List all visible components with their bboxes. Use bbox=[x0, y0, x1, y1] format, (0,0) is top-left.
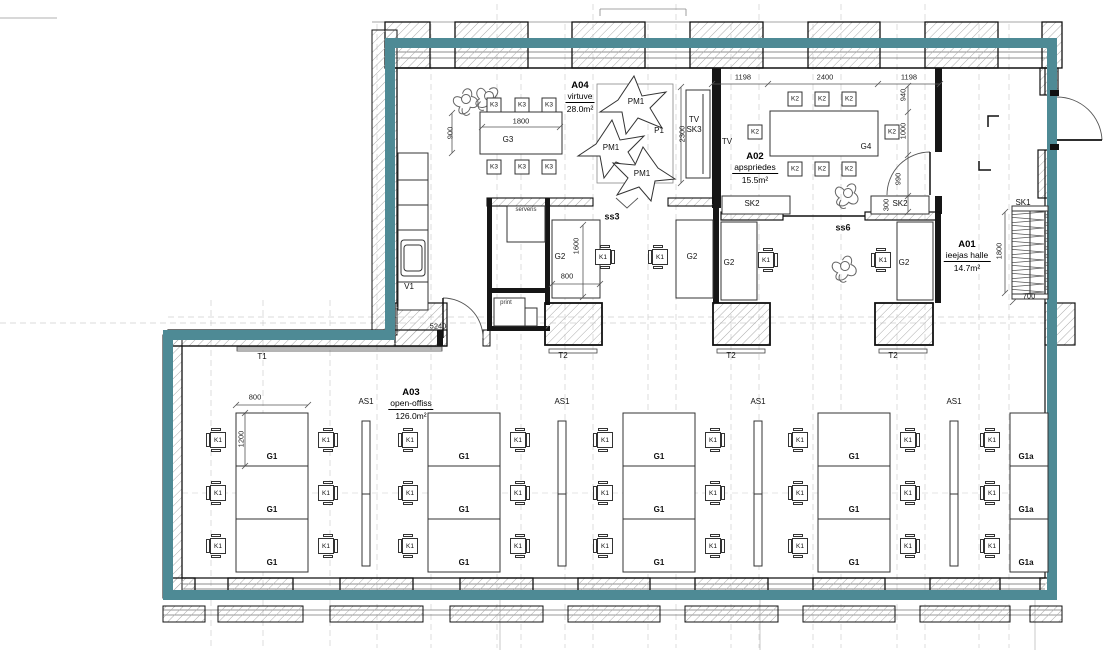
label-g1: G1 bbox=[654, 506, 665, 514]
chair-label: K1 bbox=[793, 433, 807, 447]
chair-label: K1 bbox=[706, 433, 720, 447]
chair-k1: K1 bbox=[758, 252, 774, 268]
chair-part bbox=[526, 486, 530, 500]
label-as1: AS1 bbox=[358, 398, 373, 406]
chair-part bbox=[600, 245, 610, 248]
chair-label: K1 bbox=[876, 253, 890, 267]
chair-part bbox=[206, 539, 210, 553]
room-code: A03 bbox=[388, 387, 433, 398]
chair-part bbox=[763, 269, 773, 272]
chair-part bbox=[323, 534, 333, 537]
dimension-800: 800 bbox=[249, 393, 262, 401]
chair-label: K3 bbox=[488, 99, 501, 112]
dimension-1800: 1800 bbox=[513, 117, 530, 125]
room-code: A01 bbox=[944, 239, 991, 250]
chair-label: K3 bbox=[543, 99, 556, 112]
chair-k1: K1 bbox=[402, 432, 418, 448]
chair-part bbox=[323, 481, 333, 484]
plan-text-overlay: ss3ss6serverisprintV1T1T2T2T2SK1SK2SK2TV… bbox=[0, 0, 1119, 652]
chair-k1: K1 bbox=[792, 485, 808, 501]
chair-part bbox=[876, 248, 886, 251]
chair-label: K1 bbox=[793, 539, 807, 553]
dimension-5240: 5240 bbox=[430, 322, 447, 330]
label-g1: G1 bbox=[849, 559, 860, 567]
label-g3: G3 bbox=[503, 136, 514, 144]
chair-label: K1 bbox=[598, 539, 612, 553]
chair-part bbox=[763, 248, 773, 251]
chair-part bbox=[648, 250, 652, 264]
chair-part bbox=[403, 449, 413, 452]
room-name: apspriedes bbox=[732, 162, 778, 174]
chair-k1: K1 bbox=[875, 252, 891, 268]
chair-label: K1 bbox=[319, 486, 333, 500]
chair-k3: K3 bbox=[487, 160, 502, 175]
chair-part bbox=[985, 502, 995, 505]
room-area: 28.0m² bbox=[565, 103, 594, 114]
label-g1a: G1a bbox=[1018, 506, 1033, 514]
chair-k1: K1 bbox=[510, 485, 526, 501]
chair-k1: K1 bbox=[210, 485, 226, 501]
chair-part bbox=[793, 449, 803, 452]
label-as1: AS1 bbox=[946, 398, 961, 406]
chair-k1: K1 bbox=[210, 538, 226, 554]
chair-label: K1 bbox=[759, 253, 773, 267]
chair-part bbox=[916, 486, 920, 500]
label-g1: G1 bbox=[267, 559, 278, 567]
chair-part bbox=[206, 486, 210, 500]
chair-k3: K3 bbox=[515, 98, 530, 113]
chair-part bbox=[788, 486, 792, 500]
chair-part bbox=[916, 539, 920, 553]
floor-plan-drawing: ss3ss6serverisprintV1T1T2T2T2SK1SK2SK2TV… bbox=[0, 0, 1119, 652]
chair-part bbox=[323, 428, 333, 431]
chair-part bbox=[905, 555, 915, 558]
chair-part bbox=[323, 449, 333, 452]
label-g2: G2 bbox=[555, 253, 566, 261]
chair-k1: K1 bbox=[705, 432, 721, 448]
chair-label: K1 bbox=[511, 486, 525, 500]
label-t1: T1 bbox=[257, 353, 266, 361]
chair-label: K3 bbox=[543, 161, 556, 174]
chair-part bbox=[793, 502, 803, 505]
chair-part bbox=[323, 502, 333, 505]
label-pm1: PM1 bbox=[603, 144, 619, 152]
chair-label: K2 bbox=[816, 163, 829, 176]
chair-k1: K1 bbox=[318, 485, 334, 501]
chair-part bbox=[211, 502, 221, 505]
chair-k3: K3 bbox=[515, 160, 530, 175]
chair-part bbox=[598, 555, 608, 558]
label-v1: V1 bbox=[404, 283, 414, 291]
chair-part bbox=[334, 539, 338, 553]
chair-part bbox=[398, 433, 402, 447]
chair-part bbox=[710, 555, 720, 558]
chair-part bbox=[515, 502, 525, 505]
chair-part bbox=[403, 555, 413, 558]
chair-part bbox=[721, 433, 725, 447]
chair-k1: K1 bbox=[900, 538, 916, 554]
chair-label: K1 bbox=[985, 539, 999, 553]
chair-part bbox=[211, 534, 221, 537]
chair-k3: K3 bbox=[542, 98, 557, 113]
room-code: A02 bbox=[732, 151, 778, 162]
chair-label: K1 bbox=[706, 486, 720, 500]
chair-k1: K1 bbox=[510, 432, 526, 448]
chair-label: K2 bbox=[749, 126, 762, 139]
room-label-a01: A01ieejas halle14.7m² bbox=[944, 239, 991, 273]
chair-part bbox=[905, 428, 915, 431]
label-p1: P1 bbox=[654, 127, 664, 135]
chair-part bbox=[403, 481, 413, 484]
label-pm1: PM1 bbox=[628, 98, 644, 106]
chair-k1: K1 bbox=[597, 485, 613, 501]
chair-label: K1 bbox=[511, 539, 525, 553]
chair-label: K1 bbox=[211, 539, 225, 553]
chair-label: K1 bbox=[901, 539, 915, 553]
chair-part bbox=[905, 481, 915, 484]
room-code: A04 bbox=[565, 80, 594, 91]
room-label-a04: A04virtuve28.0m² bbox=[565, 80, 594, 114]
chair-k2: K2 bbox=[815, 92, 830, 107]
chair-k1: K1 bbox=[984, 538, 1000, 554]
chair-k2: K2 bbox=[842, 92, 857, 107]
chair-label: K1 bbox=[319, 539, 333, 553]
chair-k1: K1 bbox=[210, 432, 226, 448]
chair-k2: K2 bbox=[815, 162, 830, 177]
chair-part bbox=[403, 534, 413, 537]
label-tv: TV bbox=[689, 116, 699, 124]
chair-part bbox=[916, 433, 920, 447]
chair-part bbox=[598, 449, 608, 452]
chair-k2: K2 bbox=[788, 92, 803, 107]
chair-k1: K1 bbox=[900, 432, 916, 448]
chair-part bbox=[985, 555, 995, 558]
dimension-1198: 1198 bbox=[901, 73, 917, 81]
chair-label: K1 bbox=[706, 539, 720, 553]
label-g1: G1 bbox=[267, 453, 278, 461]
label-tv: TV bbox=[722, 138, 732, 146]
chair-part bbox=[980, 433, 984, 447]
chair-part bbox=[334, 433, 338, 447]
chair-part bbox=[211, 481, 221, 484]
chair-label: K2 bbox=[843, 93, 856, 106]
chair-part bbox=[515, 428, 525, 431]
chair-part bbox=[985, 449, 995, 452]
dimension-700: 700 bbox=[1023, 292, 1036, 300]
chair-k1: K1 bbox=[705, 485, 721, 501]
chair-part bbox=[980, 539, 984, 553]
chair-label: K1 bbox=[211, 433, 225, 447]
label-ss6: ss6 bbox=[835, 224, 850, 233]
chair-label: K1 bbox=[403, 433, 417, 447]
chair-part bbox=[710, 502, 720, 505]
chair-label: K2 bbox=[843, 163, 856, 176]
chair-part bbox=[515, 534, 525, 537]
chair-label: K1 bbox=[596, 250, 610, 264]
label-g1: G1 bbox=[459, 559, 470, 567]
chair-part bbox=[876, 269, 886, 272]
chair-part bbox=[611, 250, 615, 264]
chair-k1: K1 bbox=[792, 538, 808, 554]
chair-k2: K2 bbox=[842, 162, 857, 177]
chair-part bbox=[515, 481, 525, 484]
chair-part bbox=[598, 534, 608, 537]
chair-label: K2 bbox=[886, 126, 899, 139]
chair-k1: K1 bbox=[318, 538, 334, 554]
chair-k2: K2 bbox=[748, 125, 763, 140]
dimension-900: 900 bbox=[446, 127, 454, 140]
chair-part bbox=[793, 534, 803, 537]
dimension-1200: 1200 bbox=[237, 431, 245, 448]
chair-label: K1 bbox=[598, 486, 612, 500]
chair-part bbox=[323, 555, 333, 558]
chair-part bbox=[985, 534, 995, 537]
chair-part bbox=[793, 481, 803, 484]
chair-label: K3 bbox=[516, 99, 529, 112]
label-print: print bbox=[500, 300, 512, 306]
room-area: 14.7m² bbox=[944, 262, 991, 273]
chair-part bbox=[403, 428, 413, 431]
chair-label: K1 bbox=[793, 486, 807, 500]
chair-part bbox=[905, 502, 915, 505]
label-pm1: PM1 bbox=[634, 170, 650, 178]
chair-label: K1 bbox=[901, 433, 915, 447]
chair-part bbox=[206, 433, 210, 447]
label-g2: G2 bbox=[687, 253, 698, 261]
label-t2: T2 bbox=[726, 352, 735, 360]
chair-label: K1 bbox=[511, 433, 525, 447]
label-g1: G1 bbox=[849, 506, 860, 514]
chair-part bbox=[710, 428, 720, 431]
chair-k1: K1 bbox=[792, 432, 808, 448]
chair-part bbox=[600, 266, 610, 269]
label-g1a: G1a bbox=[1018, 559, 1033, 567]
label-t2: T2 bbox=[558, 352, 567, 360]
chair-part bbox=[211, 555, 221, 558]
room-area: 126.0m² bbox=[388, 410, 433, 421]
chair-part bbox=[774, 253, 778, 267]
chair-k1: K1 bbox=[984, 432, 1000, 448]
label-g1a: G1a bbox=[1018, 453, 1033, 461]
chair-part bbox=[980, 486, 984, 500]
label-g1: G1 bbox=[459, 506, 470, 514]
chair-k1: K1 bbox=[402, 485, 418, 501]
chair-label: K1 bbox=[403, 539, 417, 553]
chair-part bbox=[905, 534, 915, 537]
chair-label: K1 bbox=[598, 433, 612, 447]
label-t2: T2 bbox=[888, 352, 897, 360]
chair-part bbox=[793, 555, 803, 558]
chair-part bbox=[710, 481, 720, 484]
chair-k1: K1 bbox=[705, 538, 721, 554]
chair-label: K3 bbox=[488, 161, 501, 174]
chair-part bbox=[871, 253, 875, 267]
chair-part bbox=[526, 539, 530, 553]
label-g1: G1 bbox=[459, 453, 470, 461]
dimension-990: 990 bbox=[894, 173, 902, 186]
chair-k3: K3 bbox=[542, 160, 557, 175]
dimension-2400: 2400 bbox=[817, 73, 834, 81]
chair-label: K1 bbox=[211, 486, 225, 500]
dimension-1000: 1000 bbox=[899, 123, 907, 140]
room-name: ieejas halle bbox=[944, 250, 991, 262]
chair-label: K3 bbox=[516, 161, 529, 174]
label-as1: AS1 bbox=[554, 398, 569, 406]
chair-part bbox=[403, 502, 413, 505]
chair-part bbox=[398, 539, 402, 553]
chair-label: K2 bbox=[789, 93, 802, 106]
label-serveris: serveris bbox=[515, 207, 536, 213]
label-sk3: SK3 bbox=[686, 126, 701, 134]
chair-k1: K1 bbox=[402, 538, 418, 554]
chair-part bbox=[710, 534, 720, 537]
chair-k3: K3 bbox=[487, 98, 502, 113]
chair-k1: K1 bbox=[318, 432, 334, 448]
chair-part bbox=[653, 245, 663, 248]
chair-part bbox=[793, 428, 803, 431]
chair-part bbox=[334, 486, 338, 500]
chair-part bbox=[710, 449, 720, 452]
chair-part bbox=[515, 449, 525, 452]
chair-part bbox=[985, 481, 995, 484]
chair-k2: K2 bbox=[788, 162, 803, 177]
chair-part bbox=[211, 449, 221, 452]
label-g1: G1 bbox=[654, 453, 665, 461]
chair-label: K1 bbox=[319, 433, 333, 447]
dimension-940: 940 bbox=[899, 89, 907, 102]
room-area: 15.5m² bbox=[732, 174, 778, 185]
label-g1: G1 bbox=[849, 453, 860, 461]
chair-part bbox=[721, 486, 725, 500]
chair-part bbox=[788, 433, 792, 447]
dimension-300: 300 bbox=[882, 199, 890, 212]
chair-label: K1 bbox=[403, 486, 417, 500]
room-name: virtuve bbox=[565, 91, 594, 103]
chair-part bbox=[515, 555, 525, 558]
chair-k1: K1 bbox=[595, 249, 611, 265]
chair-label: K2 bbox=[789, 163, 802, 176]
chair-k1: K1 bbox=[984, 485, 1000, 501]
chair-label: K1 bbox=[985, 486, 999, 500]
chair-part bbox=[593, 433, 597, 447]
room-name: open-offiss bbox=[388, 398, 433, 410]
chair-k1: K1 bbox=[510, 538, 526, 554]
dimension-1198: 1198 bbox=[735, 73, 751, 81]
chair-k1: K1 bbox=[900, 485, 916, 501]
room-label-a03: A03open-offiss126.0m² bbox=[388, 387, 433, 421]
room-label-a02: A02apspriedes15.5m² bbox=[732, 151, 778, 185]
chair-part bbox=[598, 502, 608, 505]
dimension-2300: 2300 bbox=[678, 126, 686, 143]
label-ss3: ss3 bbox=[604, 213, 619, 222]
label-g2: G2 bbox=[899, 259, 910, 267]
label-sk2: SK2 bbox=[892, 200, 907, 208]
dimension-1800: 1800 bbox=[995, 243, 1003, 260]
label-g1: G1 bbox=[267, 506, 278, 514]
chair-part bbox=[593, 486, 597, 500]
label-as1: AS1 bbox=[750, 398, 765, 406]
dimension-1600: 1600 bbox=[572, 238, 580, 255]
chair-part bbox=[985, 428, 995, 431]
chair-part bbox=[398, 486, 402, 500]
chair-part bbox=[593, 539, 597, 553]
chair-part bbox=[598, 481, 608, 484]
chair-part bbox=[211, 428, 221, 431]
dimension-800: 800 bbox=[561, 272, 574, 280]
chair-part bbox=[526, 433, 530, 447]
chair-label: K1 bbox=[985, 433, 999, 447]
chair-part bbox=[721, 539, 725, 553]
label-g2: G2 bbox=[724, 259, 735, 267]
chair-label: K1 bbox=[653, 250, 667, 264]
chair-part bbox=[788, 539, 792, 553]
chair-part bbox=[905, 449, 915, 452]
chair-k1: K1 bbox=[652, 249, 668, 265]
chair-label: K1 bbox=[901, 486, 915, 500]
chair-k1: K1 bbox=[597, 432, 613, 448]
label-g1: G1 bbox=[654, 559, 665, 567]
chair-k2: K2 bbox=[885, 125, 900, 140]
label-g4: G4 bbox=[861, 143, 872, 151]
chair-part bbox=[598, 428, 608, 431]
chair-k1: K1 bbox=[597, 538, 613, 554]
chair-label: K2 bbox=[816, 93, 829, 106]
chair-part bbox=[653, 266, 663, 269]
label-sk2: SK2 bbox=[744, 200, 759, 208]
label-sk1: SK1 bbox=[1015, 199, 1030, 207]
